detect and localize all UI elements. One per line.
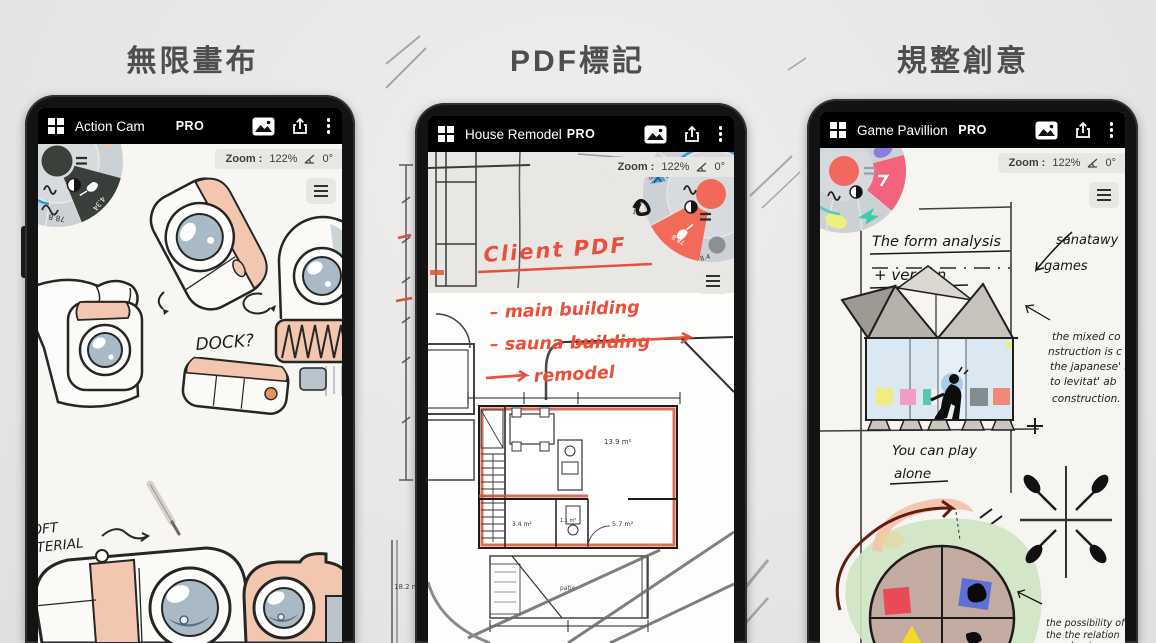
plus-mark <box>1027 418 1043 434</box>
angle-icon <box>1087 158 1098 168</box>
wheel-color-puck[interactable] <box>696 179 726 209</box>
fragment-notes: the possibility of the the relation mech… <box>1046 618 1125 643</box>
action-cam-sketch: DOCK? <box>38 144 342 643</box>
phone-mockup-2: House Remodel PRO <box>415 103 747 643</box>
dock-label: DOCK? <box>195 331 255 355</box>
phone-mockup-1: Action Cam PRO <box>25 95 355 643</box>
document-title[interactable]: Game Pavillion <box>857 123 948 138</box>
play-note-2: alone <box>894 466 931 482</box>
panel-caption-pdf-markup: PDF標記 <box>385 36 770 80</box>
canvas-menu-button[interactable] <box>698 268 728 294</box>
spinner-figure <box>1020 466 1112 578</box>
wheel-color-puck[interactable] <box>829 156 859 186</box>
heading-note: The form analysis <box>872 234 1001 250</box>
overflow-menu-icon[interactable] <box>325 116 333 136</box>
client-pdf-title: Client PDF <box>483 233 628 267</box>
wheel-contrast-icon[interactable] <box>850 186 862 198</box>
drawing-canvas[interactable]: The form analysis + version sanatawy gam… <box>820 148 1125 643</box>
pavilion-drawing <box>842 266 1018 430</box>
game-pavilion-sketch: The form analysis + version sanatawy gam… <box>820 148 1125 643</box>
angle-icon <box>696 162 707 172</box>
wheel-gray-dot[interactable] <box>709 237 726 254</box>
panel-caption-organize-ideas: 規整創意 <box>770 36 1156 80</box>
side-notes: sanatawy games the mixed co nstruction i… <box>1026 232 1125 405</box>
app-bar: House Remodel PRO <box>428 116 734 152</box>
wheel-brush-value: 21 <box>631 207 642 217</box>
hand-camera-sketch <box>38 280 142 407</box>
app-bar: Action Cam PRO <box>38 108 342 144</box>
document-title[interactable]: Action Cam <box>75 119 145 134</box>
overflow-menu-icon[interactable] <box>1108 120 1116 140</box>
svg-text:sanatawy: sanatawy <box>1056 233 1119 248</box>
canvas-menu-button[interactable] <box>1089 182 1119 208</box>
svg-text:games: games <box>1044 259 1088 274</box>
app-grid-icon[interactable] <box>830 122 847 139</box>
svg-text:5.7 m²: 5.7 m² <box>612 520 634 528</box>
canvas-menu-button[interactable] <box>306 178 336 204</box>
svg-text:the japanese' ref: the japanese' ref <box>1050 361 1125 373</box>
zoom-bar[interactable]: Zoom : 122% 0° <box>607 157 734 177</box>
soft-material-note: SOFT MATERIAL <box>38 517 84 558</box>
share-export-icon[interactable] <box>1073 120 1093 140</box>
drawing-canvas[interactable]: DOCK? <box>38 144 342 643</box>
svg-text:– sauna building: – sauna building <box>490 332 651 355</box>
drawing-canvas[interactable]: 13.9 m² 3.4 m² 1.1 m² 5.7 m² patio <box>428 152 734 643</box>
svg-text:the mixed co: the mixed co <box>1052 331 1121 343</box>
pro-badge: PRO <box>567 127 596 141</box>
import-image-icon[interactable] <box>252 117 275 136</box>
wheel-contrast-icon[interactable] <box>68 179 81 192</box>
svg-text:to levitat' ab: to levitat' ab <box>1050 376 1117 388</box>
app-bar: Game Pavillion PRO <box>820 112 1125 148</box>
stylus-sketch <box>150 484 179 534</box>
overflow-menu-icon[interactable] <box>717 124 725 144</box>
tool-wheel[interactable]: 4.34 78.8 <box>38 144 123 227</box>
camera-sketch-top <box>142 169 276 319</box>
tool-wheel[interactable] <box>820 148 906 233</box>
floor-plan: 13.9 m² 3.4 m² 1.1 m² 5.7 m² <box>468 392 680 548</box>
share-export-icon[interactable] <box>290 116 310 136</box>
phone-mockup-3: Game Pavillion PRO <box>807 99 1138 643</box>
svg-text:the the relation: the the relation <box>1046 630 1120 641</box>
svg-text:SOFT: SOFT <box>38 520 61 540</box>
app-grid-icon[interactable] <box>48 118 65 135</box>
wheel-contrast-icon[interactable] <box>685 201 697 213</box>
import-image-icon[interactable] <box>1035 121 1058 140</box>
pro-badge: PRO <box>958 123 987 137</box>
marketing-screenshot: 18.2 m² 無限畫布 Action Cam PRO <box>0 0 1156 643</box>
camera-sketch-bottom-right <box>244 554 342 643</box>
app-grid-icon[interactable] <box>438 126 455 143</box>
angle-icon <box>304 154 315 164</box>
import-image-icon[interactable] <box>644 125 667 144</box>
svg-text:1.1 m²: 1.1 m² <box>560 518 576 524</box>
camera-sketch-big-left <box>38 548 246 643</box>
wheel-color-puck[interactable] <box>42 146 73 177</box>
share-export-icon[interactable] <box>682 124 702 144</box>
document-title[interactable]: House Remodel <box>465 127 562 142</box>
panel-caption-infinite-canvas: 無限畫布 <box>0 36 385 80</box>
svg-text:MATERIAL: MATERIAL <box>38 535 84 558</box>
house-remodel-pdf: 13.9 m² 3.4 m² 1.1 m² 5.7 m² patio <box>428 152 734 643</box>
svg-text:the possibility of: the possibility of <box>1046 618 1125 629</box>
pro-badge: PRO <box>176 119 205 133</box>
zoom-bar[interactable]: Zoom : 122% 0° <box>998 153 1125 173</box>
zoom-bar[interactable]: Zoom : 122% 0° <box>215 149 342 169</box>
arrow-sketch <box>159 292 164 309</box>
svg-text:construction.: construction. <box>1052 393 1121 405</box>
camera-sketch-middle <box>181 357 289 416</box>
svg-text:3.4 m²: 3.4 m² <box>512 521 532 528</box>
play-note: You can play <box>892 443 978 459</box>
svg-text:13.9 m²: 13.9 m² <box>604 438 632 446</box>
sketch-detail <box>300 368 326 390</box>
svg-text:nstruction is c: nstruction is c <box>1048 346 1122 358</box>
